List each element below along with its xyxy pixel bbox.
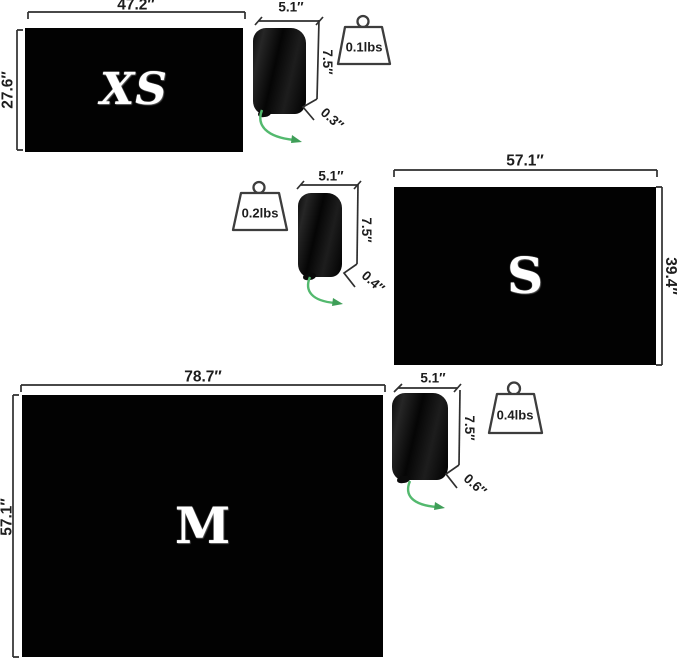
size-letter-s: S: [507, 251, 543, 301]
xs-height-bracket: [17, 30, 23, 150]
weight-handle: [508, 383, 520, 395]
bracket-line: [17, 30, 23, 150]
sack-width-line: [255, 17, 323, 25]
cord-curve: [308, 277, 335, 303]
s-width-bracket: [394, 170, 657, 177]
s-drawstring-cord-icon: [308, 277, 343, 306]
m-drawstring-cord-icon: [408, 481, 445, 510]
size-letter-xs: XS: [100, 68, 168, 112]
stuff-sack-s-graphic: [298, 193, 342, 277]
cord-curve: [408, 481, 437, 507]
m-weight-label: 0.4lbs: [497, 409, 534, 422]
s-sack-depth-label: 0.4″: [359, 269, 387, 296]
cord-arrowhead: [332, 298, 343, 306]
xs-sack-height-label: 7.5″: [320, 49, 334, 74]
xs-mat-width-label: 47.2″: [117, 0, 155, 13]
xs-sack-depth-label: 0.3″: [318, 106, 346, 133]
cord-arrowhead: [434, 502, 445, 510]
s-sack-height-label: 7.5″: [359, 217, 373, 242]
weight-handle: [254, 182, 265, 193]
size-comparison-diagram: XS S M: [0, 0, 679, 660]
sack-height-line: [317, 20, 319, 99]
s-mat-height-label: 39.4″: [662, 257, 678, 295]
stuff-sack-m-graphic: [392, 393, 448, 480]
sack-depth-bracket: [446, 465, 459, 488]
m-mat-height-label: 57.1″: [0, 498, 15, 536]
m-sack-width-label: 5.1″: [420, 371, 445, 385]
sack-depth-bracket: [344, 264, 357, 287]
m-mat-width-label: 78.7″: [184, 369, 222, 385]
xs-sack-width-label: 5.1″: [278, 0, 303, 14]
cord-arrowhead: [291, 135, 302, 143]
xs-weight-label: 0.1lbs: [346, 41, 383, 54]
m-sack-depth-label: 0.6″: [461, 472, 489, 499]
stuff-sack-xs-graphic: [253, 28, 306, 114]
weight-handle: [358, 16, 369, 27]
s-sack-width-label: 5.1″: [318, 169, 343, 183]
m-sack-height-label: 7.5″: [462, 415, 476, 440]
bracket-line: [394, 170, 657, 177]
sack-height-line: [459, 390, 460, 465]
mat-xs: XS: [25, 28, 243, 152]
s-weight-label: 0.2lbs: [242, 207, 279, 220]
bracket-line: [21, 385, 385, 392]
size-letter-m: M: [175, 501, 230, 551]
xs-mat-height-label: 27.6″: [0, 71, 16, 109]
mat-s: S: [394, 187, 656, 365]
m-width-bracket: [21, 385, 385, 392]
mat-m: M: [22, 395, 383, 657]
s-mat-width-label: 57.1″: [506, 153, 544, 169]
